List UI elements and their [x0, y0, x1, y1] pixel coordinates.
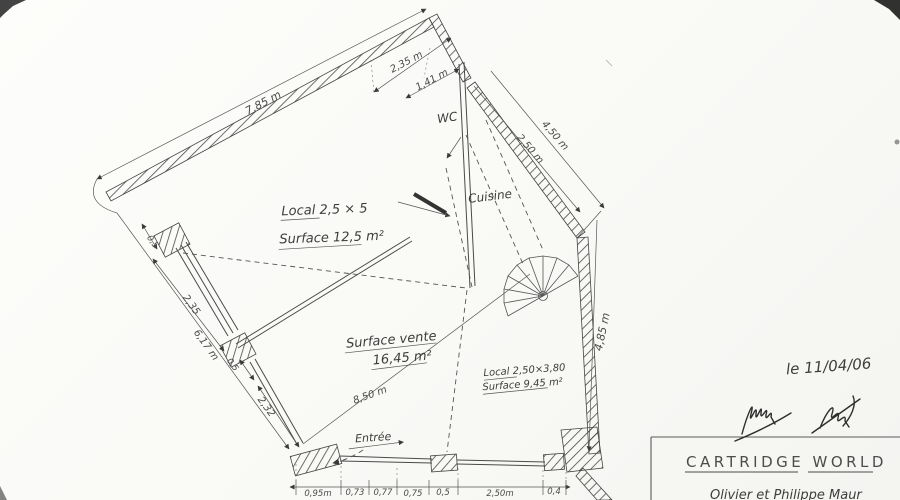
scan-dot-right	[895, 140, 900, 145]
signatures	[735, 396, 860, 441]
pillar-entrance-left	[290, 444, 342, 476]
dim-corridor-outer: 4,50 m	[539, 119, 571, 153]
title-block: CARTRIDGE WORLD Olivier et Philippe Maur…	[651, 354, 900, 500]
dim-diagonal: 8,50 m	[352, 384, 389, 406]
dim-left-upper: 2,35	[180, 293, 202, 317]
dim-top-a: 2,35 m	[388, 49, 424, 75]
label-vente-line2: 16,45 m²	[372, 348, 432, 368]
label-wc: WC	[436, 109, 459, 126]
dim-bottom-5: 2,50m	[486, 489, 513, 499]
door-leaf	[398, 194, 450, 216]
wall-kitchen-right	[467, 82, 585, 238]
dim-bottom-4: 0,5	[436, 488, 450, 498]
scan-smudge-top-right	[874, 0, 900, 20]
date-annotation: le 11/04/06	[785, 354, 872, 378]
wall-top	[106, 18, 434, 201]
scan-mark-small	[606, 60, 612, 66]
dim-bottom-6: 0,4	[547, 487, 561, 497]
scan-smudge-bottom-left	[0, 486, 7, 500]
dim-top-b: 1,41 m	[414, 67, 450, 93]
label-entree-text: Entrée	[355, 430, 392, 446]
dim-bottom-0: 0,95m	[304, 489, 331, 499]
label-local1-line1: Local 2,5 × 5	[281, 201, 368, 219]
signature-right	[812, 396, 860, 433]
dim-right-side: 4,85 m	[592, 312, 613, 353]
dim-bottom-3: 0,75	[404, 489, 423, 499]
label-vente: Surface vente 16,45 m²	[344, 329, 439, 372]
wall-lines	[176, 62, 545, 466]
pillar-front-right	[543, 453, 564, 470]
floor-plan-drawing: 7,85 m 2,35 m 1,41 m 2,50 m 4,50 m 4,85 …	[0, 0, 900, 500]
dim-left-outer: 6,17 m	[191, 328, 221, 363]
spiral-staircase	[504, 256, 578, 316]
scanned-floor-plan-page: 7,85 m 2,35 m 1,41 m 2,50 m 4,50 m 4,85 …	[0, 0, 900, 500]
wall-stub-bottom-right	[576, 468, 612, 500]
pillar-front-center	[430, 454, 457, 472]
label-local1: Local 2,5 × 5 Surface 12,5 m²	[277, 201, 384, 250]
label-entree: Entrée	[348, 429, 404, 449]
company-name: CARTRIDGE WORLD	[686, 453, 887, 471]
label-local2: Local 2,50×3,80 Surface 9,45 m²	[481, 362, 567, 394]
label-local1-line2: Surface 12,5 m²	[279, 229, 384, 248]
dim-bottom-2: 0,77	[374, 488, 394, 498]
client-names: Olivier et Philippe Maur	[710, 488, 863, 500]
corner-pillar-bottom-right	[561, 427, 603, 472]
label-cuisine: Cuisine	[467, 187, 512, 206]
scan-smudge-top-left	[0, 0, 26, 18]
dim-bottom-1: 0,73	[346, 488, 365, 498]
